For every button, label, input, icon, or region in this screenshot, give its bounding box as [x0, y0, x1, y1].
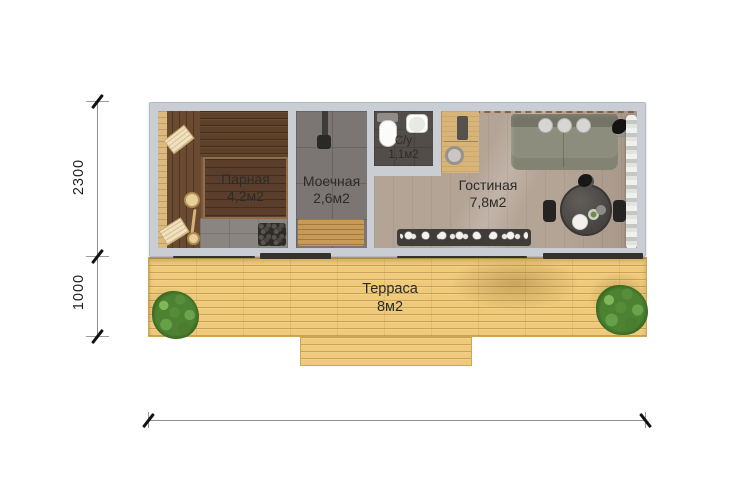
dimension-value-2300: 2300 — [71, 147, 87, 207]
shrub-icon — [152, 291, 199, 339]
terrace-deck: Терраса 8м2 — [148, 257, 647, 337]
floor-plan: Терраса 8м2 Парная 4,2м2 — [0, 0, 753, 502]
window-bar — [173, 256, 255, 258]
cooktop — [457, 116, 468, 140]
door-bar — [260, 253, 331, 259]
plate — [596, 205, 606, 215]
shrub-icon — [596, 285, 648, 335]
room-label-living: Гостиная 7,8м2 — [408, 177, 568, 211]
sauna-ladle-scoop — [187, 232, 200, 245]
terrace-label: Терраса 8м2 — [310, 280, 470, 316]
room-area: 1,1м2 — [374, 149, 433, 163]
room-area: 7,8м2 — [408, 194, 568, 211]
room-wc: С/у 1,1м2 — [374, 111, 433, 166]
washbasin — [406, 114, 428, 133]
teapot — [578, 174, 594, 189]
sauna-bucket — [184, 192, 200, 208]
room-label-steam: Парная 4,2м2 — [221, 171, 270, 205]
kitchen-sink — [445, 146, 464, 165]
terrace-name: Терраса — [310, 280, 470, 298]
terrace-area: 8м2 — [310, 298, 470, 316]
room-wash: Моечная 2,6м2 — [296, 111, 367, 248]
dimension-line-horizontal — [148, 420, 646, 421]
wash-wood-mat — [298, 219, 364, 246]
counter-divider — [444, 141, 478, 142]
dimension-line-vertical — [97, 101, 98, 337]
room-name: Моечная — [296, 173, 367, 190]
sofa-cushion — [538, 118, 553, 133]
rug-fluff — [400, 231, 528, 240]
sofa-cushion — [576, 118, 591, 133]
room-steam: Парная 4,2м2 — [158, 111, 288, 248]
shaggy-rug — [397, 229, 531, 246]
plate — [572, 214, 588, 230]
room-name: С/у — [374, 135, 433, 149]
sofa-seam — [563, 127, 564, 167]
tree-shadow — [450, 256, 580, 311]
kitchen-counter — [441, 111, 479, 173]
room-name: Парная — [221, 171, 270, 188]
sauna-platform: Парная 4,2м2 — [203, 157, 288, 219]
room-area: 2,6м2 — [296, 190, 367, 207]
shower-head — [317, 135, 331, 149]
wall-decor-trim — [474, 111, 634, 113]
dimension-value-1000: 1000 — [71, 262, 87, 322]
sauna-stove — [258, 223, 286, 246]
room-name: Гостиная — [408, 177, 568, 194]
door-bar — [543, 253, 643, 259]
terrace-step — [300, 337, 472, 366]
sofa-cushion — [557, 118, 572, 133]
wc-wall — [374, 166, 441, 176]
room-area: 4,2м2 — [221, 188, 270, 205]
building-outline: Парная 4,2м2 Моечная 2,6м2 — [149, 102, 646, 257]
window-bar — [397, 256, 527, 258]
chair — [613, 200, 626, 222]
curtain — [626, 115, 637, 248]
room-label-wc: С/у 1,1м2 — [374, 135, 433, 163]
room-label-wash: Моечная 2,6м2 — [296, 173, 367, 207]
